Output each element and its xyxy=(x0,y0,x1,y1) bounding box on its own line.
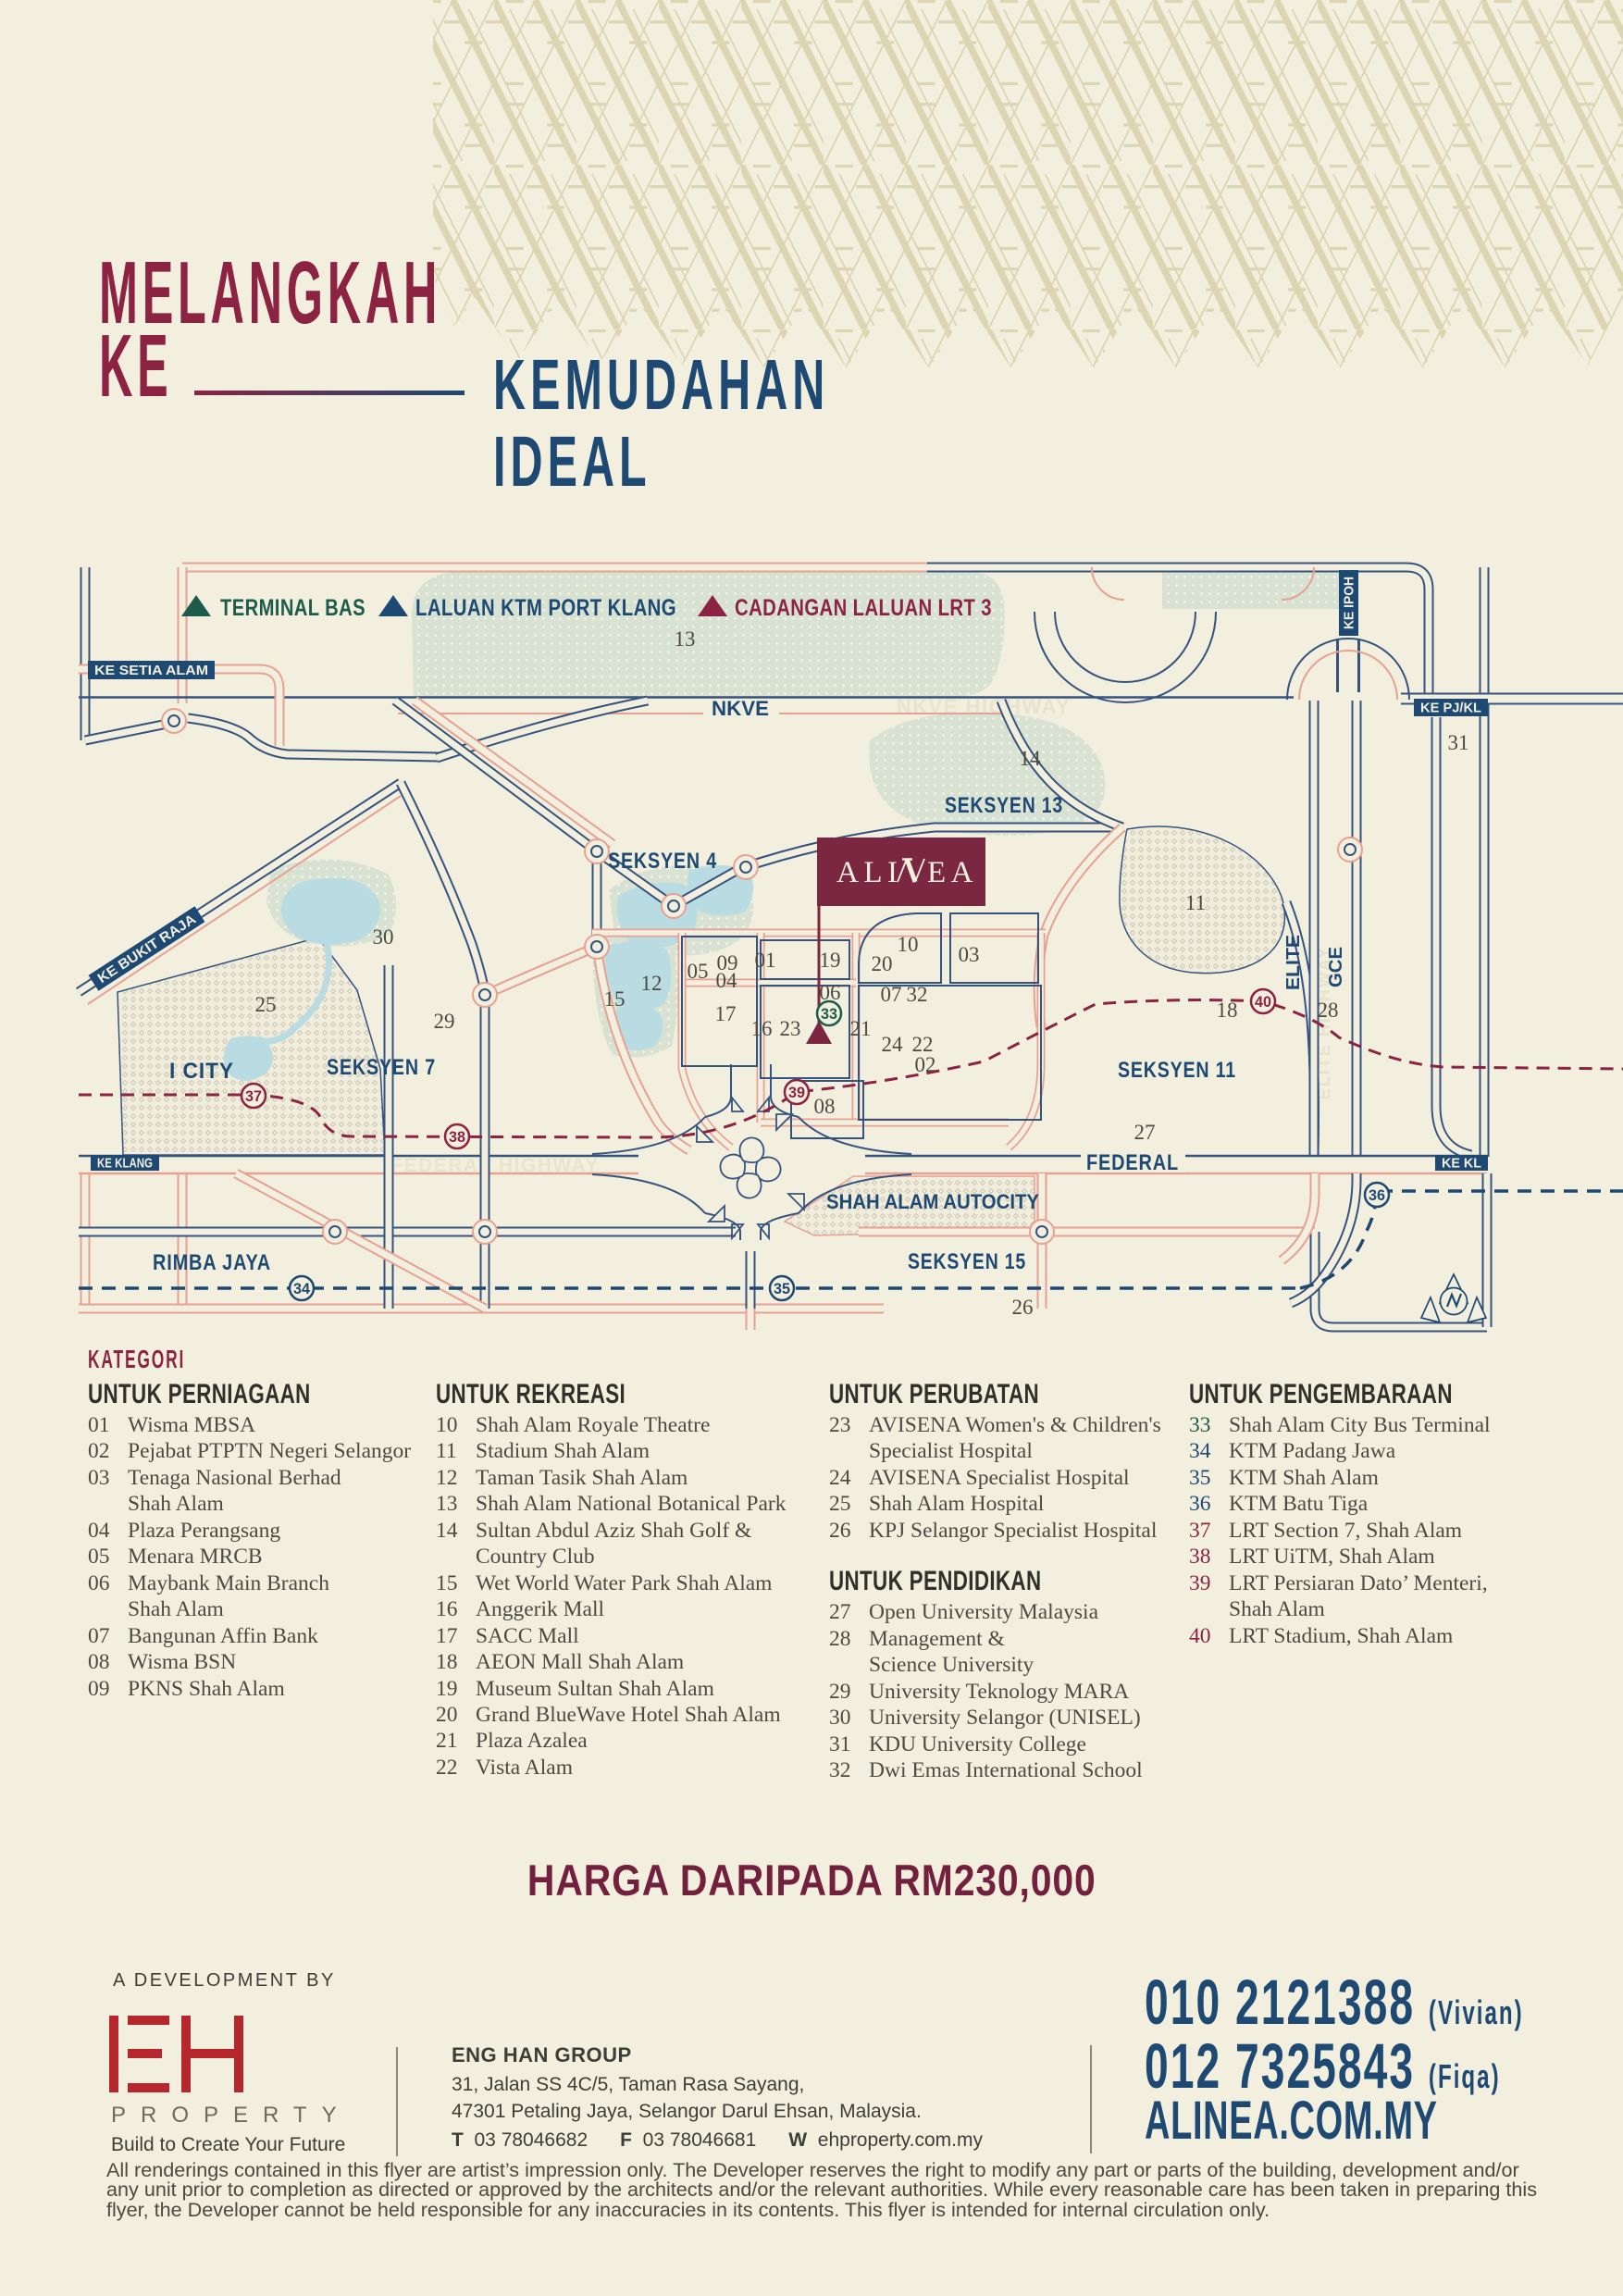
svg-text:14: 14 xyxy=(1020,747,1042,770)
svg-text:20: 20 xyxy=(872,952,893,975)
svg-text:33: 33 xyxy=(821,1005,837,1023)
svg-text:EA: EA xyxy=(927,856,978,889)
svg-text:08: 08 xyxy=(814,1095,836,1118)
svg-text:05: 05 xyxy=(688,960,709,983)
svg-text:RIMBA JAYA: RIMBA JAYA xyxy=(153,1250,271,1275)
svg-text:06: 06 xyxy=(820,981,841,1004)
svg-text:16: 16 xyxy=(751,1017,773,1040)
svg-text:39: 39 xyxy=(788,1084,805,1101)
svg-text:SEKSYEN 15: SEKSYEN 15 xyxy=(908,1249,1026,1274)
svg-text:CADANGAN LALUAN LRT 3: CADANGAN LALUAN LRT 3 xyxy=(735,595,992,621)
svg-text:23: 23 xyxy=(780,1017,801,1040)
svg-text:31: 31 xyxy=(1448,731,1469,754)
svg-text:07: 07 xyxy=(881,983,902,1006)
svg-text:01: 01 xyxy=(755,949,776,972)
svg-text:13: 13 xyxy=(675,627,696,651)
svg-text:32: 32 xyxy=(907,983,928,1006)
svg-text:36: 36 xyxy=(1369,1186,1385,1204)
svg-text:10: 10 xyxy=(898,933,919,956)
svg-text:ALI: ALI xyxy=(836,856,902,889)
svg-text:21: 21 xyxy=(850,1017,872,1040)
svg-text:KE PJ/KL: KE PJ/KL xyxy=(1420,701,1481,716)
svg-text:SEKSYEN 7: SEKSYEN 7 xyxy=(327,1055,436,1080)
svg-text:02: 02 xyxy=(915,1053,936,1076)
svg-text:12: 12 xyxy=(641,972,663,995)
svg-text:NKVE: NKVE xyxy=(712,697,769,720)
svg-text:KE SETIA ALAM: KE SETIA ALAM xyxy=(94,663,208,678)
svg-text:25: 25 xyxy=(255,993,277,1016)
svg-text:28: 28 xyxy=(1318,999,1339,1022)
svg-text:24: 24 xyxy=(882,1033,904,1056)
svg-text:KE IPOH: KE IPOH xyxy=(1342,577,1357,629)
svg-text:SEKSYEN 11: SEKSYEN 11 xyxy=(1118,1058,1236,1083)
svg-text:11: 11 xyxy=(1185,891,1206,914)
svg-text:SEKSYEN 13: SEKSYEN 13 xyxy=(945,793,1063,818)
svg-text:34: 34 xyxy=(293,1280,311,1297)
svg-text:26: 26 xyxy=(1012,1296,1034,1319)
svg-text:GCE: GCE xyxy=(1326,947,1346,987)
svg-text:SEKSYEN 4: SEKSYEN 4 xyxy=(608,849,717,874)
svg-text:38: 38 xyxy=(449,1128,465,1146)
svg-text:37: 37 xyxy=(245,1087,262,1105)
svg-text:FEDERAL: FEDERAL xyxy=(1086,1150,1179,1175)
svg-text:19: 19 xyxy=(820,949,841,972)
svg-text:40: 40 xyxy=(1255,993,1271,1011)
svg-text:TERMINAL BAS: TERMINAL BAS xyxy=(220,595,365,621)
svg-text:18: 18 xyxy=(1217,999,1238,1022)
svg-text:03: 03 xyxy=(959,943,980,966)
svg-text:29: 29 xyxy=(434,1010,455,1033)
svg-text:35: 35 xyxy=(774,1280,790,1297)
svg-text:15: 15 xyxy=(604,987,626,1011)
svg-text:30: 30 xyxy=(373,925,394,949)
svg-text:SHAH ALAM AUTOCITY: SHAH ALAM AUTOCITY xyxy=(826,1190,1039,1213)
svg-text:ELITE: ELITE xyxy=(1283,935,1304,990)
svg-text:KE KLANG: KE KLANG xyxy=(97,1156,153,1172)
svg-text:I CITY: I CITY xyxy=(169,1059,234,1084)
svg-text:KE KL: KE KL xyxy=(1442,1156,1481,1172)
svg-text:17: 17 xyxy=(715,1002,737,1025)
svg-text:04: 04 xyxy=(716,969,738,992)
svg-text:LALUAN KTM PORT KLANG: LALUAN KTM PORT KLANG xyxy=(415,595,676,621)
svg-text:27: 27 xyxy=(1134,1121,1156,1144)
